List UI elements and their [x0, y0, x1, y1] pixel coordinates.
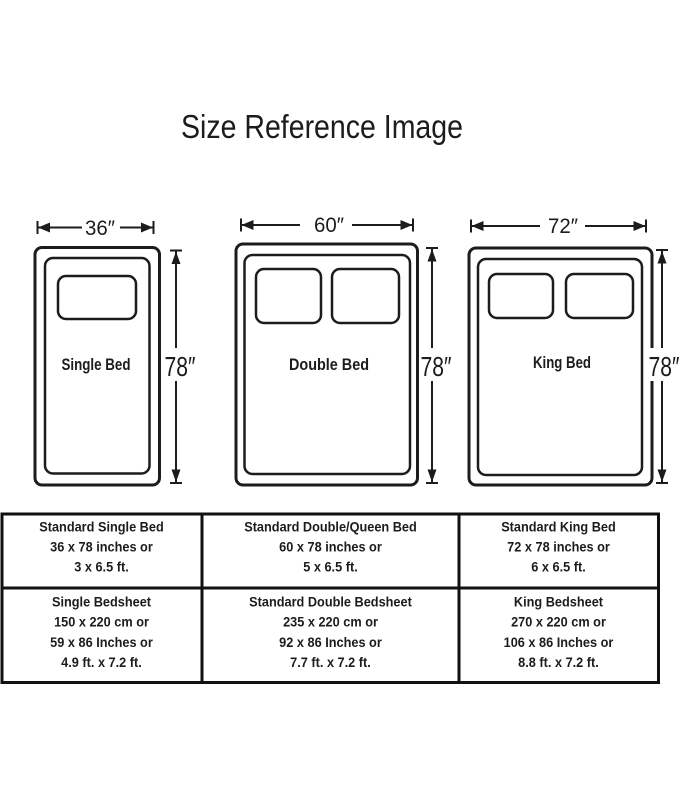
svg-text:8.8 ft. x 7.2 ft.: 8.8 ft. x 7.2 ft. — [518, 654, 599, 670]
svg-text:106 x 86 Inches or: 106 x 86 Inches or — [504, 634, 614, 650]
svg-text:150 x 220 cm or: 150 x 220 cm or — [54, 614, 149, 630]
svg-text:4.9 ft. x 7.2 ft.: 4.9 ft. x 7.2 ft. — [61, 654, 142, 670]
svg-text:78″: 78″ — [649, 351, 680, 382]
svg-text:Single Bed: Single Bed — [62, 355, 131, 374]
svg-text:78″: 78″ — [421, 351, 452, 382]
svg-text:3 x 6.5 ft.: 3 x 6.5 ft. — [74, 559, 128, 575]
svg-text:270 x 220 cm or: 270 x 220 cm or — [511, 614, 606, 630]
svg-text:72 x 78 inches or: 72 x 78 inches or — [507, 539, 610, 555]
svg-text:36″: 36″ — [85, 217, 116, 240]
svg-text:Double Bed: Double Bed — [289, 355, 369, 374]
svg-text:60″: 60″ — [314, 214, 345, 237]
svg-text:36 x 78 inches or: 36 x 78 inches or — [50, 539, 153, 555]
svg-text:72″: 72″ — [548, 215, 579, 238]
svg-text:59 x 86 Inches or: 59 x 86 Inches or — [50, 634, 153, 650]
svg-text:Standard Double Bedsheet: Standard Double Bedsheet — [249, 594, 412, 610]
svg-text:5 x 6.5 ft.: 5 x 6.5 ft. — [303, 559, 357, 575]
svg-text:92 x 86 Inches or: 92 x 86 Inches or — [279, 634, 382, 650]
svg-text:Standard Double/Queen Bed: Standard Double/Queen Bed — [244, 519, 417, 535]
svg-text:King Bedsheet: King Bedsheet — [514, 594, 604, 610]
svg-text:78″: 78″ — [165, 351, 196, 382]
svg-text:King Bed: King Bed — [533, 353, 591, 372]
svg-text:60 x 78 inches or: 60 x 78 inches or — [279, 539, 382, 555]
svg-text:Size Reference Image: Size Reference Image — [181, 108, 463, 145]
svg-text:Standard King Bed: Standard King Bed — [501, 519, 616, 535]
svg-text:Standard Single Bed: Standard Single Bed — [39, 519, 164, 535]
svg-text:235 x 220 cm or: 235 x 220 cm or — [283, 614, 378, 630]
svg-text:6 x 6.5 ft.: 6 x 6.5 ft. — [531, 559, 585, 575]
svg-text:Single Bedsheet: Single Bedsheet — [52, 594, 152, 610]
svg-text:7.7 ft. x 7.2 ft.: 7.7 ft. x 7.2 ft. — [290, 654, 371, 670]
